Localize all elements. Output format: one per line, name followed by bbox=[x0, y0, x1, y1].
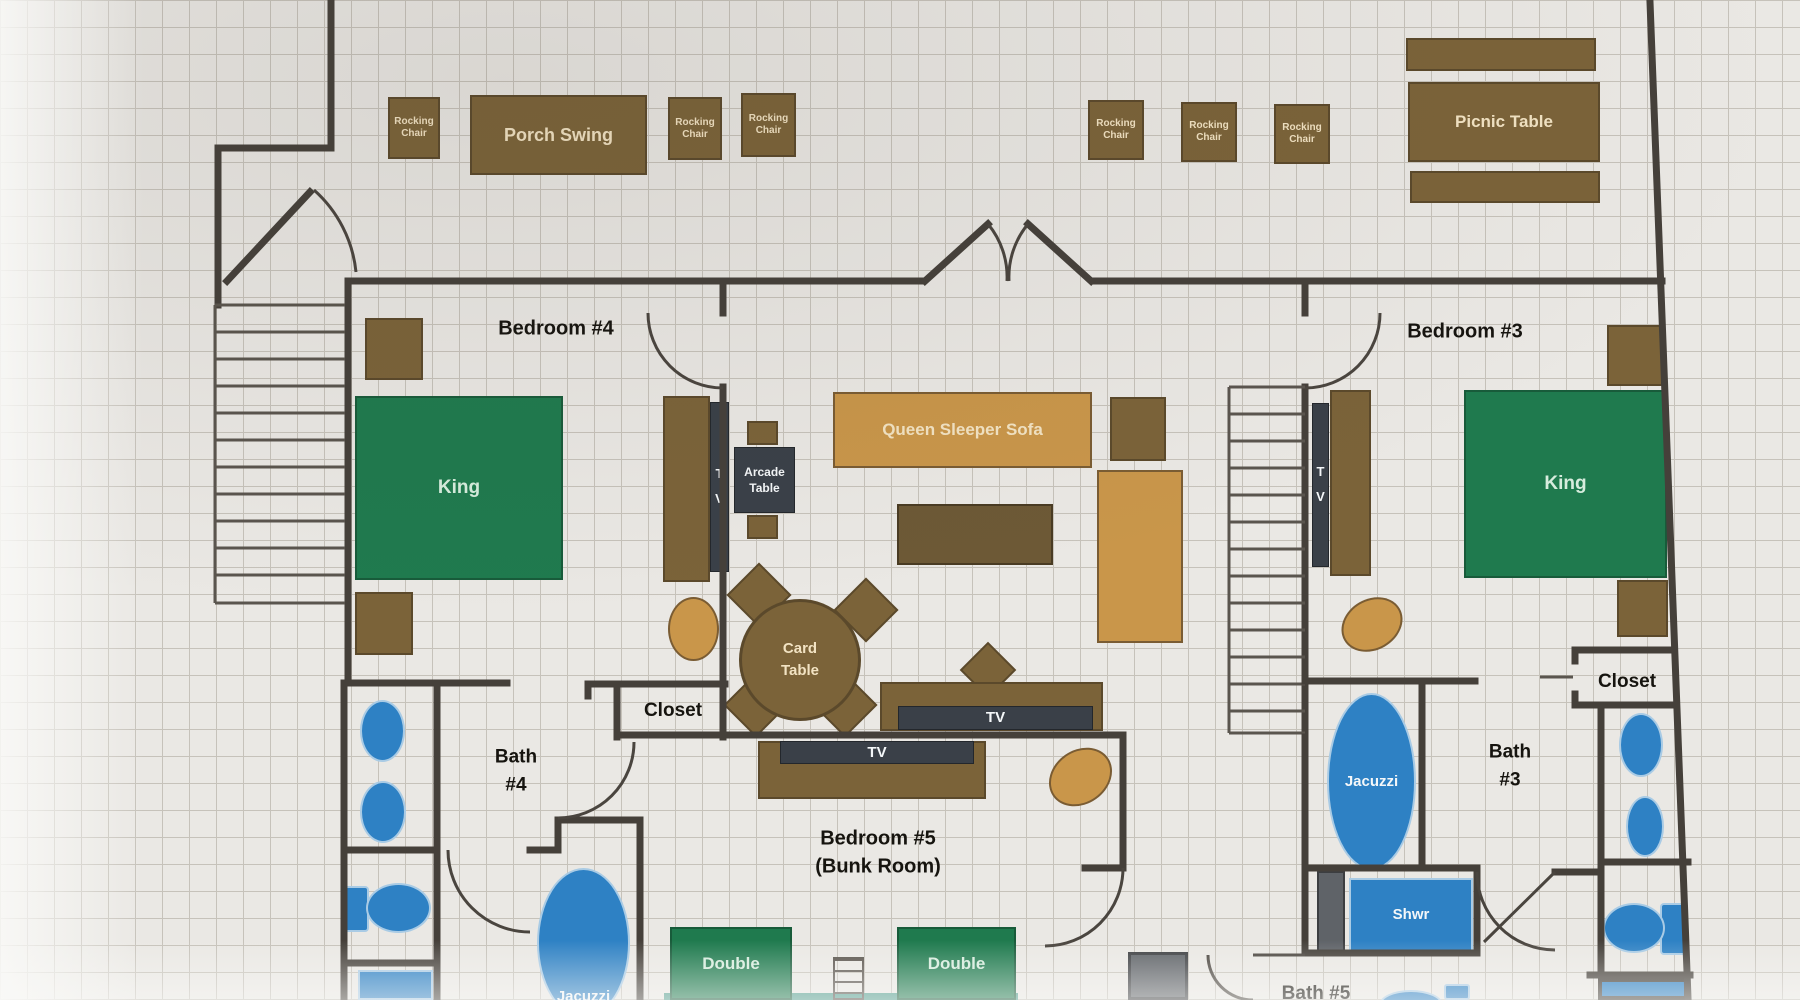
dresser-left bbox=[663, 396, 710, 582]
arcade-seat-bottom bbox=[747, 515, 778, 539]
picnic-table-bench-top bbox=[1406, 38, 1596, 71]
bedroom-3-label: Bedroom #3 bbox=[1407, 319, 1523, 346]
toilet-4-bowl bbox=[366, 883, 431, 933]
shower-label: Shwr bbox=[1393, 904, 1430, 926]
double-bed-1-label: Double bbox=[702, 954, 760, 974]
coffee-table bbox=[897, 504, 1053, 565]
toilet-3-bowl bbox=[1603, 903, 1665, 953]
rocking-chair-1: Rocking Chair bbox=[388, 97, 440, 159]
rocking-chair-4-label: Rocking Chair bbox=[1096, 118, 1135, 142]
dresser-right bbox=[1330, 390, 1371, 576]
arcade-table: Arcade Table bbox=[734, 447, 795, 513]
bath-4-text: Bath #4 bbox=[495, 746, 537, 795]
floor-plan: Rocking Chair Porch Swing Rocking Chair … bbox=[0, 0, 1800, 1000]
rocking-chair-1-label: Rocking Chair bbox=[394, 116, 433, 140]
tv-lower-label: TV bbox=[867, 742, 886, 764]
bath-4-label: Bath #4 bbox=[495, 743, 537, 798]
bedroom-3-text: Bedroom #3 bbox=[1407, 321, 1523, 343]
bath-3-text: Bath #3 bbox=[1489, 741, 1531, 790]
tub-3 bbox=[1598, 978, 1688, 1000]
arcade-table-label: Arcade Table bbox=[744, 464, 785, 496]
bedroom-4-label: Bedroom #4 bbox=[498, 316, 614, 343]
sink-4b bbox=[360, 781, 406, 843]
tv-lower: TV bbox=[780, 741, 974, 764]
tv-upper-label: TV bbox=[986, 707, 1005, 729]
chaise-chair bbox=[1097, 470, 1183, 643]
rocking-chair-6: Rocking Chair bbox=[1274, 104, 1330, 164]
porch-swing: Porch Swing bbox=[470, 95, 647, 175]
closet-left-label: Closet bbox=[644, 697, 702, 725]
closet-left-text: Closet bbox=[644, 700, 702, 721]
jacuzzi-left: Jacuzzi bbox=[537, 868, 630, 1000]
queen-sleeper-sofa: Queen Sleeper Sofa bbox=[833, 392, 1092, 468]
picnic-table-bench-bottom bbox=[1410, 171, 1600, 203]
sink-4a bbox=[360, 700, 405, 762]
nightstand-3 bbox=[1607, 325, 1663, 386]
rocking-chair-5-label: Rocking Chair bbox=[1189, 120, 1228, 144]
king-bed-right: King bbox=[1464, 390, 1667, 578]
king-bed-left: King bbox=[355, 396, 563, 580]
bedroom-5-sublabel: (Bunk Room) bbox=[815, 854, 941, 881]
bedroom-5-subtitle-text: (Bunk Room) bbox=[815, 856, 941, 878]
bedroom-5-label: Bedroom #5 bbox=[820, 826, 936, 853]
picnic-table: Picnic Table bbox=[1408, 82, 1600, 162]
bunk-ladder bbox=[833, 957, 864, 1000]
jacuzzi-left-label: Jacuzzi bbox=[557, 986, 610, 1000]
tub-4 bbox=[358, 970, 433, 1000]
arcade-seat-top bbox=[747, 421, 778, 445]
closet-right-label: Closet bbox=[1598, 668, 1656, 696]
end-table bbox=[1110, 397, 1166, 461]
rocking-chair-3: Rocking Chair bbox=[741, 93, 796, 157]
tv-left-label: T V bbox=[715, 462, 724, 511]
double-bed-1: Double bbox=[670, 927, 792, 1000]
tv-upper: TV bbox=[898, 706, 1093, 730]
ottoman-3 bbox=[1332, 586, 1413, 662]
nightstand-1 bbox=[365, 318, 423, 380]
tv-left: T V bbox=[710, 402, 729, 572]
bedroom-4-text: Bedroom #4 bbox=[498, 318, 614, 340]
rocking-chair-2: Rocking Chair bbox=[668, 97, 722, 160]
ottoman-1 bbox=[668, 597, 719, 661]
card-table: Card Table bbox=[739, 599, 861, 721]
utility-box bbox=[1128, 952, 1188, 1000]
nightstand-2 bbox=[355, 592, 413, 655]
toilet-5-tank bbox=[1444, 984, 1470, 1000]
ottoman-2 bbox=[1038, 736, 1124, 819]
porch-swing-label: Porch Swing bbox=[504, 125, 613, 146]
card-table-label: Card Table bbox=[781, 638, 819, 682]
rocking-chair-6-label: Rocking Chair bbox=[1282, 122, 1321, 146]
sink-3b bbox=[1626, 796, 1664, 857]
picnic-table-label: Picnic Table bbox=[1455, 112, 1553, 132]
nightstand-4 bbox=[1617, 580, 1668, 637]
closet-right-text: Closet bbox=[1598, 671, 1656, 692]
bath-3-label: Bath #3 bbox=[1489, 738, 1531, 793]
tv-right-label: T V bbox=[1316, 460, 1325, 509]
king-bed-right-label: King bbox=[1544, 473, 1586, 495]
double-bed-2: Double bbox=[897, 927, 1016, 1000]
tv-right: T V bbox=[1312, 403, 1329, 567]
jacuzzi-right: Jacuzzi bbox=[1327, 693, 1416, 870]
jacuzzi-right-label: Jacuzzi bbox=[1345, 771, 1398, 793]
sink-3a bbox=[1619, 713, 1663, 777]
double-bed-2-label: Double bbox=[928, 954, 986, 974]
bath-5-label: Bath #5 bbox=[1282, 980, 1351, 1000]
rocking-chair-3-label: Rocking Chair bbox=[749, 113, 788, 137]
bedroom-5-title-text: Bedroom #5 bbox=[820, 828, 936, 850]
shower-wall bbox=[1317, 871, 1345, 953]
queen-sleeper-sofa-label: Queen Sleeper Sofa bbox=[882, 420, 1043, 440]
rocking-chair-5: Rocking Chair bbox=[1181, 102, 1237, 162]
king-bed-left-label: King bbox=[438, 477, 480, 499]
bath-5-text: Bath #5 bbox=[1282, 983, 1351, 1000]
rocking-chair-4: Rocking Chair bbox=[1088, 100, 1144, 160]
rocking-chair-2-label: Rocking Chair bbox=[675, 117, 714, 141]
toilet-5-bowl bbox=[1379, 990, 1443, 1000]
shower: Shwr bbox=[1349, 878, 1473, 952]
